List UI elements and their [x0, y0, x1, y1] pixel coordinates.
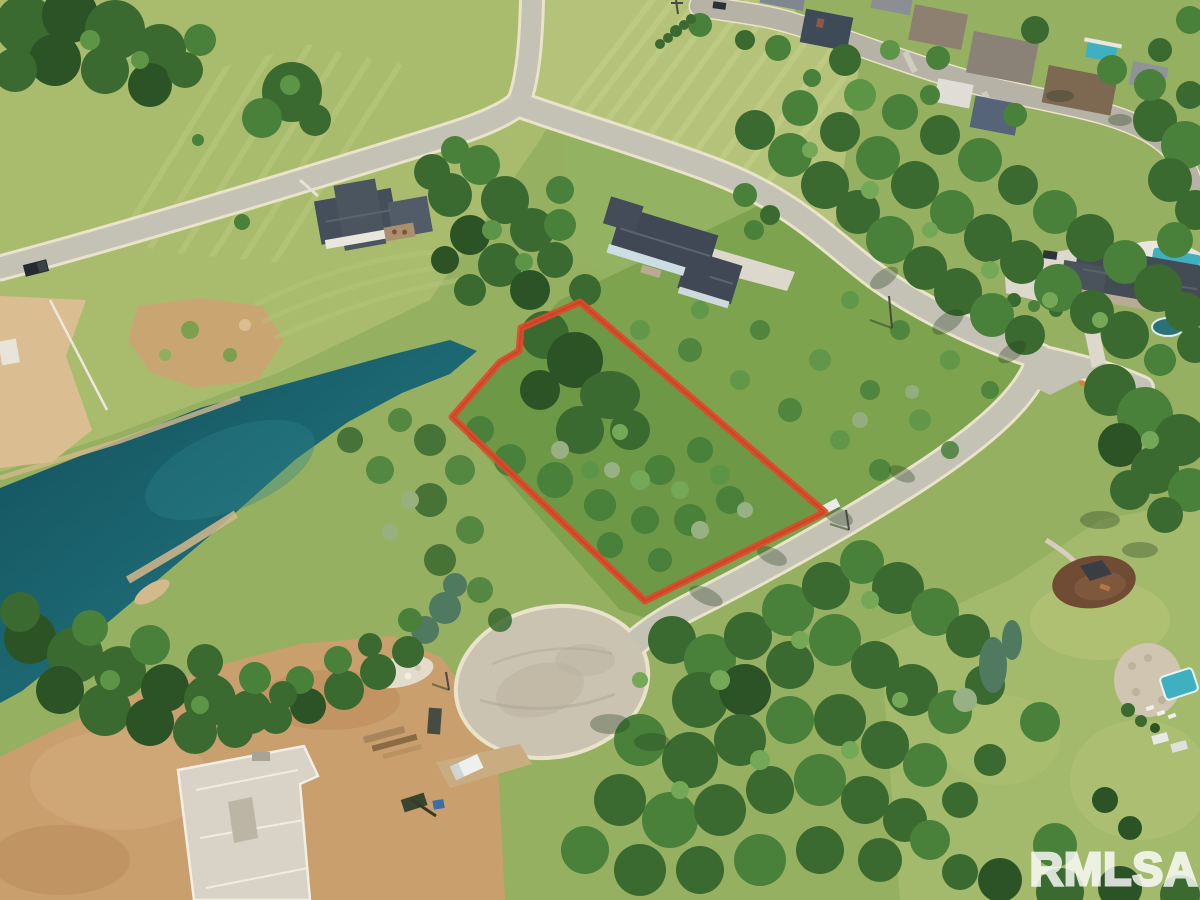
skid-loader: [432, 799, 444, 810]
aerial-photo: RMLSA: [0, 0, 1200, 900]
watermark-text: RMLSA: [1030, 843, 1199, 895]
trailer: [427, 708, 442, 735]
aerial-photo-canvas: RMLSA: [0, 0, 1200, 900]
safety-marker: [1079, 380, 1085, 386]
